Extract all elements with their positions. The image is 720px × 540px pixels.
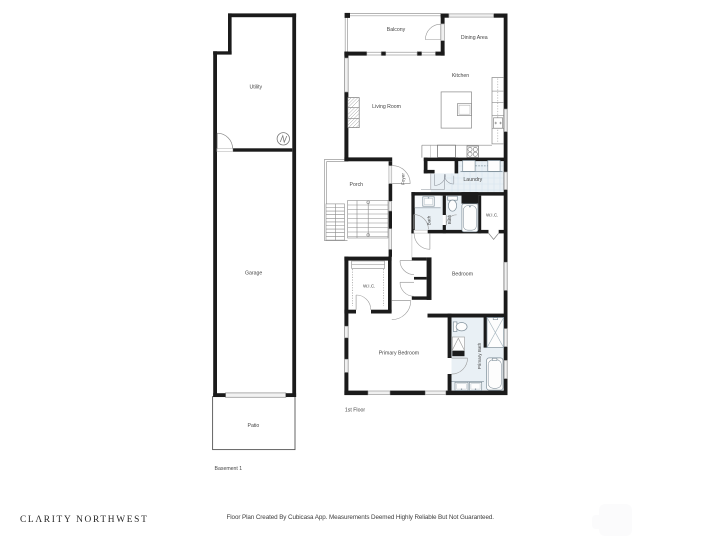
svg-text:Kitchen: Kitchen [452,73,469,79]
svg-text:Dining Area: Dining Area [461,35,488,41]
svg-text:Foyer: Foyer [400,173,405,185]
svg-text:Basement 1: Basement 1 [215,466,243,472]
svg-text:CLΛRITY NORTHWEST: CLΛRITY NORTHWEST [20,515,148,525]
svg-text:Floor Plan Created By Cubicasa: Floor Plan Created By Cubicasa App. Meas… [227,514,495,521]
svg-text:Utility: Utility [249,84,262,90]
svg-text:Porch: Porch [350,182,364,188]
svg-text:Primary Bath: Primary Bath [477,342,482,369]
svg-text:Bedroom: Bedroom [452,272,473,278]
svg-text:Balcony: Balcony [387,27,406,33]
svg-text:Garage: Garage [245,271,262,277]
svg-text:1st Floor: 1st Floor [345,408,365,414]
svg-text:Patio: Patio [247,423,259,429]
svg-text:Bath: Bath [447,214,452,224]
svg-text:Living Room: Living Room [372,104,401,110]
svg-text:Bath: Bath [427,215,432,225]
svg-text:Primary Bedroom: Primary Bedroom [379,351,419,357]
svg-text:Laundry: Laundry [463,177,482,183]
svg-text:W.I.C.: W.I.C. [486,212,499,217]
svg-text:W.I.C.: W.I.C. [363,284,376,289]
